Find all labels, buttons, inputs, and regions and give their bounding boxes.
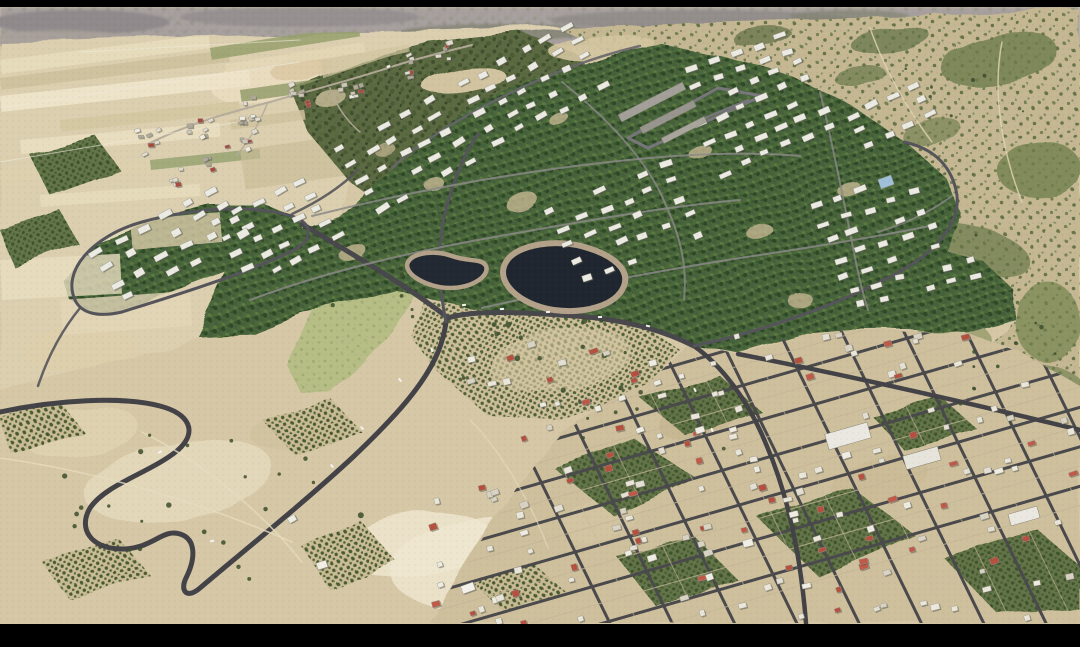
- letterbox-bottom: [0, 624, 1080, 647]
- scene-root: [0, 0, 1080, 647]
- film-grain-overlay: [0, 7, 1080, 624]
- aerial-3d-render: [0, 0, 1080, 647]
- aerial-render-stage: [0, 0, 1080, 647]
- letterbox-top: [0, 0, 1080, 7]
